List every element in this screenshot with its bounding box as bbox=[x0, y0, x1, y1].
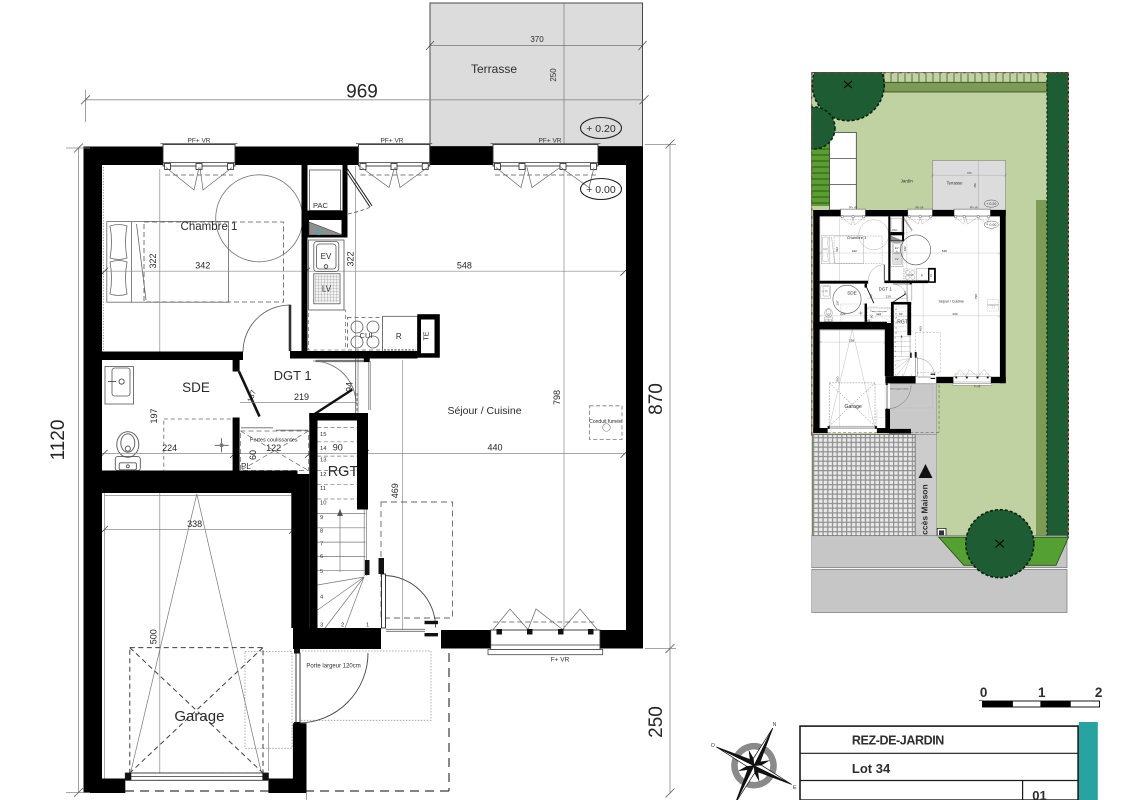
svg-text:PF+ VR: PF+ VR bbox=[381, 138, 404, 145]
svg-text:Portes coulissantes: Portes coulissantes bbox=[250, 438, 298, 444]
svg-text:TE: TE bbox=[424, 331, 431, 340]
svg-text:440: 440 bbox=[487, 443, 502, 453]
svg-text:DGT 1: DGT 1 bbox=[274, 368, 312, 383]
svg-text:250: 250 bbox=[646, 706, 667, 738]
svg-text:322: 322 bbox=[346, 251, 356, 266]
svg-text:LV: LV bbox=[322, 285, 332, 294]
svg-text:F+ VR: F+ VR bbox=[551, 657, 570, 664]
svg-text:14: 14 bbox=[320, 446, 327, 452]
svg-text:969: 969 bbox=[346, 82, 378, 103]
svg-text:SDE: SDE bbox=[182, 380, 210, 395]
svg-text:10: 10 bbox=[320, 501, 326, 507]
svg-text:EV: EV bbox=[321, 252, 332, 261]
svg-text:PL: PL bbox=[241, 462, 251, 471]
svg-text:219: 219 bbox=[294, 392, 309, 402]
svg-text:1120: 1120 bbox=[48, 420, 69, 461]
svg-text:REZ-DE-JARDIN: REZ-DE-JARDIN bbox=[852, 734, 944, 748]
svg-text:548: 548 bbox=[457, 261, 472, 271]
svg-text:500: 500 bbox=[149, 629, 159, 644]
svg-text:1: 1 bbox=[366, 623, 369, 629]
svg-text:O: O bbox=[711, 743, 715, 749]
svg-text:338: 338 bbox=[187, 519, 202, 529]
svg-text:RGT: RGT bbox=[328, 464, 359, 480]
svg-text:2: 2 bbox=[341, 623, 344, 629]
svg-text:Séjour / Cuisine: Séjour / Cuisine bbox=[447, 405, 521, 417]
svg-text:Garage: Garage bbox=[174, 708, 224, 725]
svg-text:Lot 34: Lot 34 bbox=[852, 761, 891, 776]
svg-text:12: 12 bbox=[320, 472, 326, 478]
svg-text:Jardin: Jardin bbox=[901, 179, 914, 184]
svg-text:342: 342 bbox=[195, 261, 210, 271]
svg-text:370: 370 bbox=[530, 35, 544, 44]
svg-text:6: 6 bbox=[320, 554, 323, 560]
svg-text:0: 0 bbox=[980, 685, 988, 700]
svg-text:PAC: PAC bbox=[313, 201, 328, 210]
svg-text:CUI: CUI bbox=[360, 331, 373, 340]
svg-text:+ 0.00: + 0.00 bbox=[586, 184, 616, 196]
svg-text:322: 322 bbox=[148, 253, 158, 268]
svg-text:2: 2 bbox=[1095, 685, 1103, 700]
svg-text:01: 01 bbox=[1032, 788, 1046, 800]
svg-text:798: 798 bbox=[552, 390, 562, 405]
svg-text:R: R bbox=[396, 332, 402, 341]
svg-text:Chambre 1: Chambre 1 bbox=[181, 221, 238, 233]
svg-text:7: 7 bbox=[320, 542, 323, 548]
svg-text:250: 250 bbox=[549, 68, 558, 82]
svg-text:Accès Maison: Accès Maison bbox=[920, 484, 930, 541]
svg-text:11: 11 bbox=[320, 486, 326, 492]
svg-text:Porte largeur 120cm: Porte largeur 120cm bbox=[306, 664, 360, 670]
svg-text:870: 870 bbox=[646, 383, 667, 415]
svg-text:5: 5 bbox=[320, 569, 323, 575]
svg-text:3: 3 bbox=[320, 623, 323, 629]
svg-text:+ 0.20: + 0.20 bbox=[586, 123, 616, 135]
svg-text:90: 90 bbox=[333, 443, 343, 453]
svg-text:197: 197 bbox=[149, 408, 159, 423]
svg-text:224: 224 bbox=[162, 443, 177, 453]
svg-text:15: 15 bbox=[320, 432, 326, 438]
svg-text:13: 13 bbox=[320, 458, 326, 464]
svg-text:Terrasse: Terrasse bbox=[471, 62, 517, 76]
svg-text:PF+ VR: PF+ VR bbox=[539, 138, 562, 145]
svg-text:1: 1 bbox=[1038, 685, 1046, 700]
svg-text:PF+ VR: PF+ VR bbox=[188, 138, 211, 145]
svg-text:9: 9 bbox=[320, 515, 323, 521]
svg-text:N: N bbox=[773, 722, 777, 728]
svg-text:60: 60 bbox=[248, 450, 258, 460]
svg-text:8: 8 bbox=[320, 529, 323, 535]
svg-text:469: 469 bbox=[390, 483, 400, 498]
